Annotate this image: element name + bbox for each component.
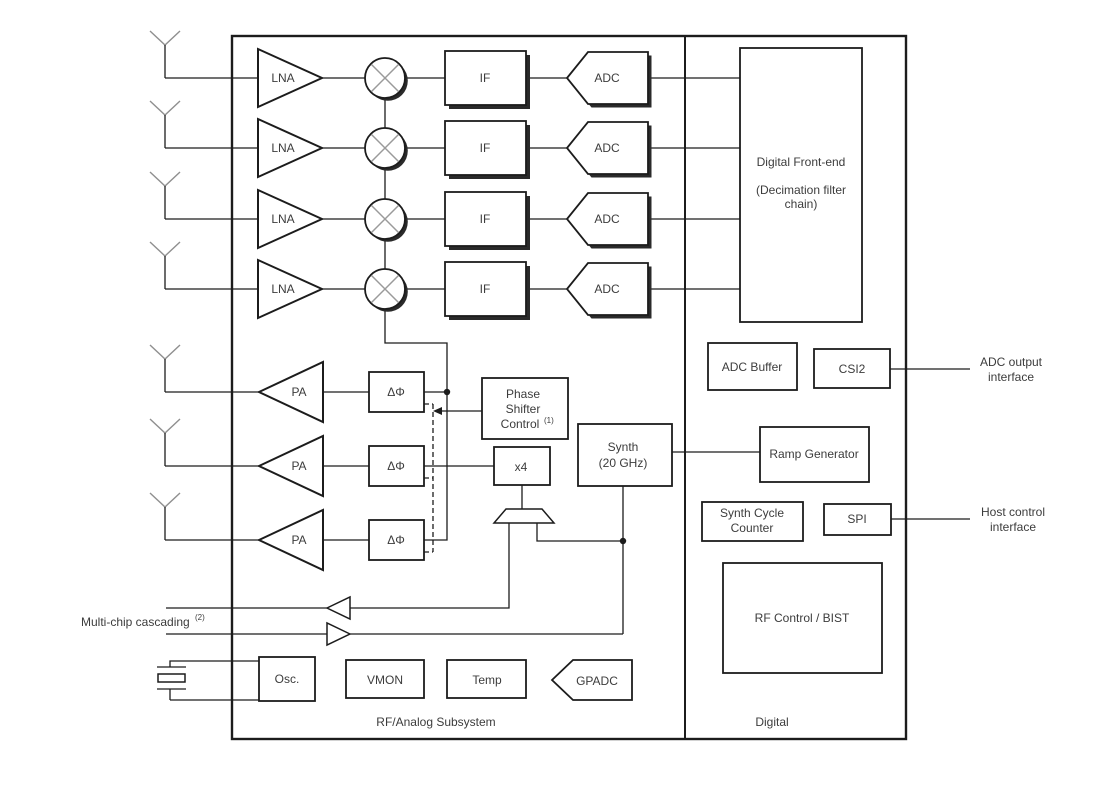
phase-shifter-label: ΔΦ	[387, 533, 405, 547]
frequency-multiplier: x4	[494, 447, 550, 485]
if-label: IF	[480, 282, 491, 296]
adc-label: ADC	[594, 141, 620, 155]
if-label: IF	[480, 212, 491, 226]
rf-control-bist: RF Control / BIST	[723, 563, 882, 673]
lna-label: LNA	[271, 141, 294, 155]
vmon: VMON	[346, 660, 424, 698]
oscillator: Osc.	[158, 657, 315, 701]
psc-line1: Phase	[506, 387, 540, 401]
adc-output-interface-label: ADC output interface	[980, 355, 1043, 384]
antenna-icon	[150, 419, 180, 433]
phase-control-dashed-bus	[424, 404, 433, 552]
rx-chain-4: LNA IF ADC	[258, 260, 652, 320]
lna-label: LNA	[271, 212, 294, 226]
dfe-line3: chain)	[785, 197, 818, 211]
lna-label: LNA	[271, 282, 294, 296]
rf-control-bist-label: RF Control / BIST	[755, 611, 850, 625]
csi2-label: CSI2	[839, 362, 866, 376]
lo-splitter-trapezoid	[494, 509, 554, 523]
phase-shifter-label: ΔΦ	[387, 385, 405, 399]
scc-line1: Synth Cycle	[720, 506, 784, 520]
adc-output-line2: interface	[988, 370, 1034, 384]
synth-line2: (20 GHz)	[599, 456, 648, 470]
digital-front-end: Digital Front-end (Decimation filter cha…	[740, 48, 862, 322]
cascade-out-buffer	[327, 597, 350, 619]
gpadc: GPADC	[552, 660, 632, 700]
rx-antennas	[150, 31, 180, 289]
if-label: IF	[480, 141, 491, 155]
vmon-label: VMON	[367, 673, 403, 687]
pa-label: PA	[291, 459, 306, 473]
adc-buffer-label: ADC Buffer	[722, 360, 782, 374]
rx-chain-1: LNA IF ADC	[258, 49, 652, 109]
lna-label: LNA	[271, 71, 294, 85]
temp-sensor: Temp	[447, 660, 526, 698]
spi: SPI	[824, 504, 891, 535]
ramp-generator-label: Ramp Generator	[769, 447, 858, 461]
temp-label: Temp	[472, 673, 502, 687]
csi2: CSI2	[814, 349, 890, 388]
arrowhead-left	[433, 407, 442, 415]
psc-footnote: (1)	[544, 416, 554, 425]
adc-output-line1: ADC output	[980, 355, 1043, 369]
dfe-line2: (Decimation filter	[756, 183, 846, 197]
host-control-line1: Host control	[981, 505, 1045, 519]
phase-shifter-control: Phase Shifter Control (1)	[482, 378, 568, 439]
spi-label: SPI	[847, 512, 866, 526]
synth-box	[578, 424, 672, 486]
phase-shifter-label: ΔΦ	[387, 459, 405, 473]
antenna-icon	[150, 493, 180, 507]
pa-label: PA	[291, 385, 306, 399]
adc-label: ADC	[594, 71, 620, 85]
adc-label: ADC	[594, 282, 620, 296]
if-label: IF	[480, 71, 491, 85]
tx-antennas	[150, 345, 180, 540]
osc-label: Osc.	[275, 672, 300, 686]
adc-label: ADC	[594, 212, 620, 226]
ramp-generator: Ramp Generator	[760, 427, 869, 482]
synth-cycle-counter: Synth Cycle Counter	[702, 502, 803, 541]
antenna-icon	[150, 242, 180, 256]
block-diagram-svg: LNA IF ADC LNA IF ADC LNA IF ADC	[0, 0, 1108, 790]
multichip-cascading: Multi-chip cascading (2)	[81, 597, 350, 645]
antenna-icon	[150, 172, 180, 186]
psc-line3: Control	[501, 417, 540, 431]
antenna-icon	[150, 345, 180, 359]
synthesizer: Synth (20 GHz)	[578, 424, 672, 486]
dfe-line1: Digital Front-end	[757, 155, 846, 169]
digital-panel-caption: Digital	[755, 715, 788, 729]
psc-line2: Shifter	[506, 402, 541, 416]
junction-dot	[620, 538, 626, 544]
rf-panel-caption: RF/Analog Subsystem	[376, 715, 495, 729]
antenna-icon	[150, 101, 180, 115]
host-control-line2: interface	[990, 520, 1036, 534]
antenna-icon	[150, 31, 180, 45]
junction-dot	[444, 389, 450, 395]
crystal-icon	[158, 674, 185, 682]
pa-label: PA	[291, 533, 306, 547]
synth-line1: Synth	[608, 440, 639, 454]
scc-line2: Counter	[731, 521, 774, 535]
cascade-footnote: (2)	[195, 613, 205, 622]
x4-label: x4	[515, 460, 528, 474]
rx-chain-2: LNA IF ADC	[258, 119, 652, 179]
rx-chain-3: LNA IF ADC	[258, 190, 652, 250]
adc-buffer: ADC Buffer	[708, 343, 797, 390]
cascade-in-buffer	[327, 623, 350, 645]
gpadc-label: GPADC	[576, 674, 618, 688]
host-control-interface-label: Host control interface	[981, 505, 1045, 534]
cascade-label: Multi-chip cascading	[81, 615, 190, 629]
